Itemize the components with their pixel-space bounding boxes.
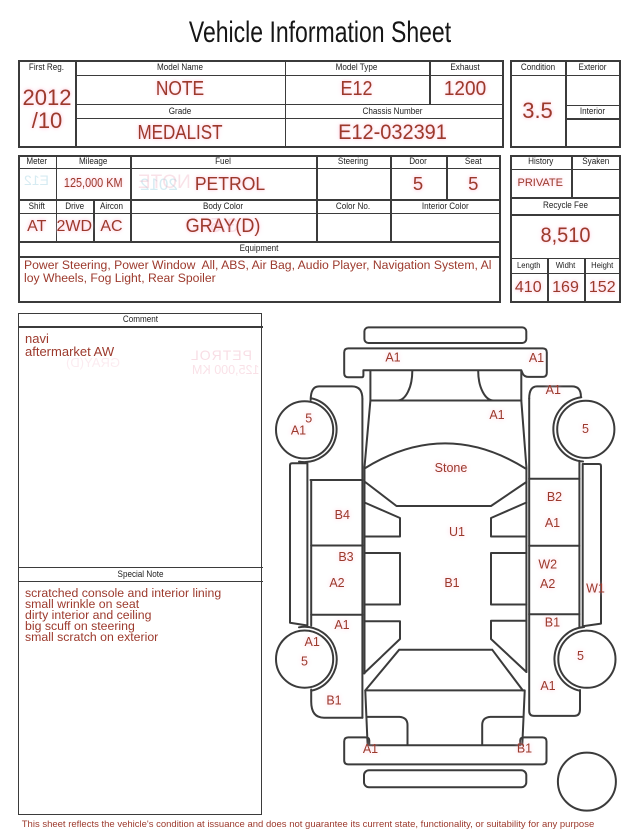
svg-text:5: 5 [577,649,584,663]
svg-text:B3: B3 [338,550,353,564]
svg-text:A1: A1 [291,424,306,438]
svg-text:W2: W2 [538,558,557,572]
svg-text:A1: A1 [529,351,544,365]
svg-text:B1: B1 [545,616,560,630]
svg-text:Stone: Stone [435,461,468,475]
svg-text:W1: W1 [586,582,605,596]
svg-text:B1: B1 [326,694,341,708]
svg-text:A1: A1 [489,408,504,422]
svg-text:A1: A1 [385,351,400,365]
svg-text:A1: A1 [363,742,378,756]
svg-text:A1: A1 [540,679,555,693]
svg-text:U1: U1 [449,525,465,539]
svg-text:A1: A1 [546,383,561,397]
svg-text:A1: A1 [334,618,349,632]
svg-text:5: 5 [582,422,589,436]
svg-text:A2: A2 [329,576,344,590]
svg-text:A1: A1 [305,635,320,649]
svg-text:5: 5 [305,412,312,426]
svg-text:5: 5 [301,655,308,669]
svg-text:A2: A2 [540,577,555,591]
svg-text:B1: B1 [517,742,532,756]
svg-text:B2: B2 [547,490,562,504]
svg-text:B1: B1 [444,576,459,590]
svg-text:A1: A1 [545,516,560,530]
svg-text:B4: B4 [335,508,350,522]
